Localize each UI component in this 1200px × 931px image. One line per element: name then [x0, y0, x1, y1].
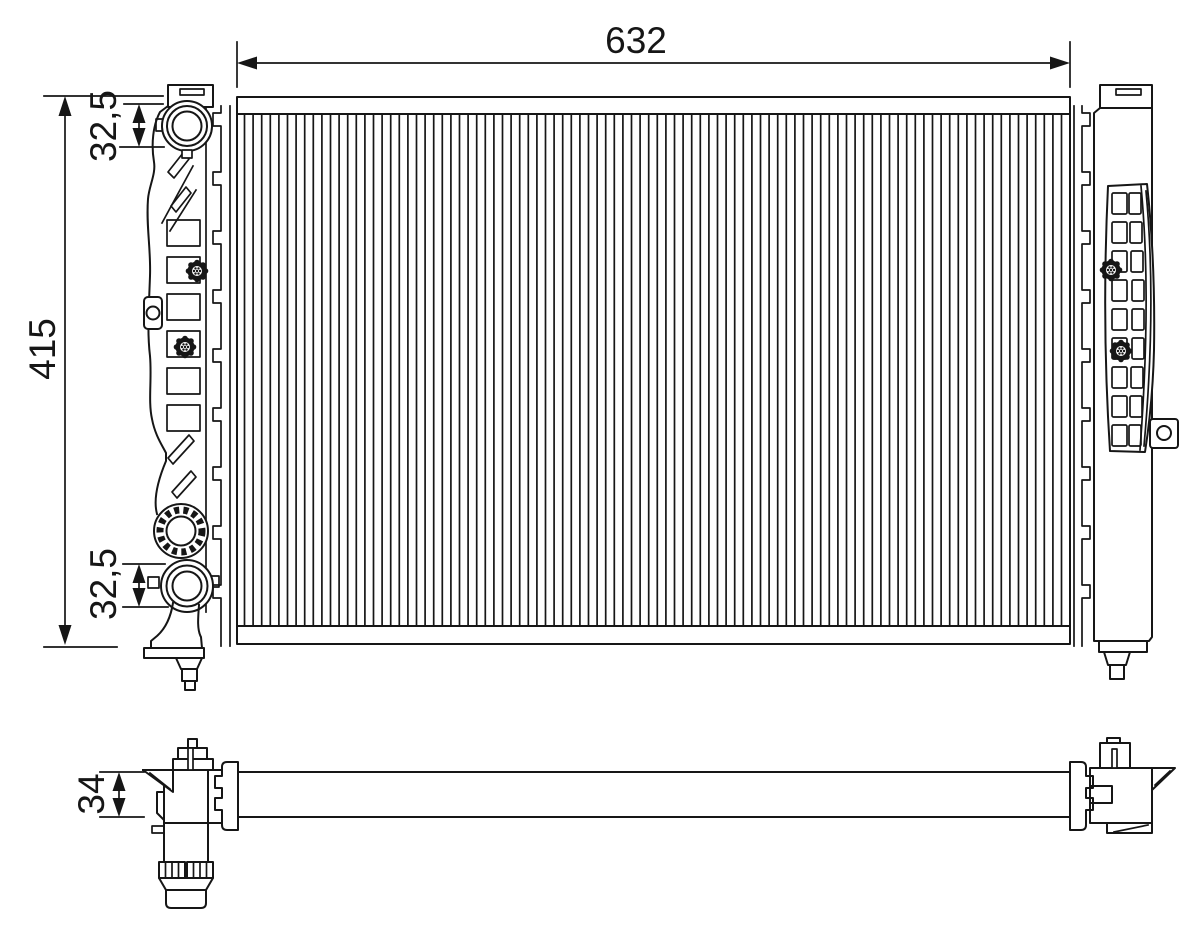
dim-bottom-port: 32,5	[83, 548, 168, 620]
dim-core-thickness-label: 34	[71, 773, 112, 814]
core-fins	[245, 116, 1062, 626]
radiator-technical-drawing: 632 415 32,5 32,5	[0, 0, 1200, 931]
dim-bottom-port-label: 32,5	[83, 548, 124, 620]
dim-core-width-label: 632	[605, 20, 667, 61]
dim-core-thickness: 34	[71, 772, 144, 817]
drain-plug	[176, 658, 202, 669]
filler-neck	[154, 504, 208, 558]
drain-plug-side	[159, 862, 213, 908]
dim-core-width: 632	[237, 20, 1070, 87]
right-foot-side	[1107, 823, 1152, 833]
right-tank-foot	[1099, 641, 1147, 679]
torx-screw	[174, 336, 197, 359]
radiator-core	[237, 97, 1070, 644]
right-tab-fin	[1152, 768, 1175, 790]
left-flange	[215, 762, 238, 830]
right-tank-side-body	[1090, 768, 1152, 823]
torx-screw	[1100, 259, 1123, 282]
drawing-svg: 632 415 32,5 32,5	[0, 0, 1200, 931]
left-tank-foot	[144, 603, 204, 690]
left-tank-side	[143, 739, 238, 908]
right-seam-teeth	[1082, 106, 1090, 646]
side-view: 34	[71, 738, 1175, 908]
torx-screw	[186, 260, 209, 283]
torx-screw	[1110, 340, 1133, 363]
left-tank	[144, 85, 219, 690]
left-tab-fin	[143, 770, 173, 792]
right-tank-side	[1070, 738, 1175, 833]
outlet-port	[148, 560, 219, 612]
dim-top-port-label: 32,5	[83, 90, 124, 162]
core-side-profile	[238, 772, 1070, 817]
side-mount-tab	[144, 297, 162, 329]
left-seam-teeth	[213, 106, 221, 646]
fan-shroud-bracket	[1105, 184, 1154, 452]
bracket-ear	[1150, 419, 1178, 448]
right-tank	[1094, 85, 1178, 679]
front-view: 632 415 32,5 32,5	[22, 20, 1178, 690]
right-mount-pin	[1100, 738, 1130, 768]
left-tank-slots	[167, 220, 200, 431]
dim-overall-height-label: 415	[22, 318, 63, 380]
left-mount-pin	[173, 739, 213, 770]
